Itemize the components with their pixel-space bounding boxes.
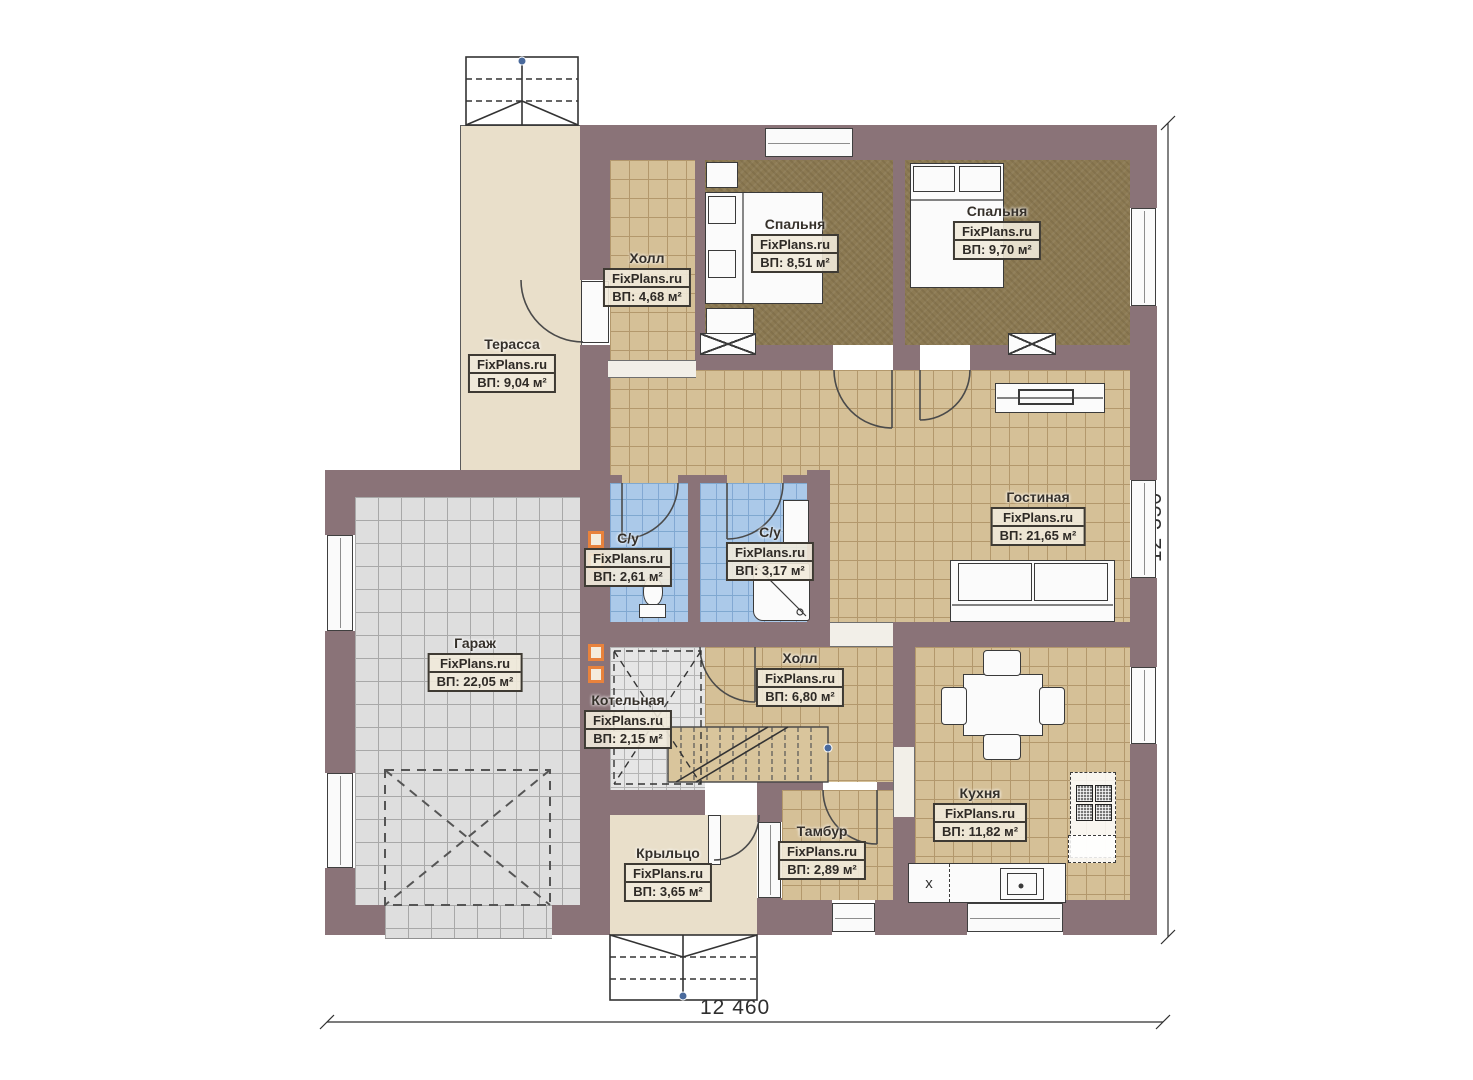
- room-area: ВП: 2,15 м²: [586, 730, 670, 747]
- entry-door: [832, 903, 875, 932]
- wall-segment: [552, 905, 585, 935]
- wall-segment: [1130, 306, 1157, 480]
- wall-segment: [1063, 900, 1130, 935]
- room-label-kitchen: Кухня FixPlans.ru ВП: 11,82 м²: [933, 785, 1027, 842]
- watermark: FixPlans.ru: [753, 236, 837, 254]
- wall-segment: [610, 622, 830, 647]
- room-area: ВП: 9,70 м²: [955, 241, 1039, 258]
- wall-segment: [893, 160, 905, 370]
- watermark: FixPlans.ru: [758, 670, 842, 688]
- room-name: Холл: [603, 250, 691, 266]
- room-label-porch: Крыльцо FixPlans.ru ВП: 3,65 м²: [624, 845, 712, 902]
- tv: [1018, 389, 1074, 405]
- room-area: ВП: 2,61 м²: [586, 568, 670, 585]
- pillow: [913, 166, 955, 192]
- chair: [1039, 687, 1065, 725]
- watermark: FixPlans.ru: [586, 712, 670, 730]
- wall-segment: [893, 622, 1130, 647]
- room-name: Спальня: [953, 203, 1041, 219]
- room-name: С/у: [726, 524, 814, 540]
- room-area: ВП: 3,65 м²: [626, 883, 710, 900]
- nightstand: [706, 162, 738, 188]
- room-area: ВП: 9,04 м²: [470, 374, 554, 391]
- burner: [1095, 804, 1112, 821]
- wall-segment: [757, 790, 782, 822]
- wall-segment: [905, 900, 967, 935]
- window: [1131, 208, 1156, 306]
- wall-segment: [325, 631, 355, 773]
- porch-steps: [610, 935, 757, 1000]
- room-area: ВП: 6,80 м²: [758, 688, 842, 705]
- watermark: FixPlans.ru: [430, 655, 521, 673]
- wall-segment: [325, 470, 580, 497]
- room-area: ВП: 11,82 м²: [935, 823, 1025, 840]
- wall-segment: [580, 125, 1157, 160]
- room-label-wc1: С/у FixPlans.ru ВП: 2,61 м²: [584, 530, 672, 587]
- window: [765, 128, 853, 157]
- wall-segment: [688, 475, 700, 622]
- floor-plan: x: [0, 0, 1473, 1080]
- vent-marker: [588, 666, 604, 683]
- room-label-hall-top: Холл FixPlans.ru ВП: 4,68 м²: [603, 250, 691, 307]
- room-label-bedroom1: Спальня FixPlans.ru ВП: 8,51 м²: [751, 216, 839, 273]
- window: [327, 773, 353, 868]
- room-label-boiler: Котельная FixPlans.ru ВП: 2,15 м²: [584, 692, 672, 749]
- room-name: Спальня: [751, 216, 839, 232]
- room-label-garage: Гараж FixPlans.ru ВП: 22,05 м²: [428, 635, 523, 692]
- room-name: Тамбур: [778, 823, 866, 839]
- wall-segment: [610, 475, 622, 483]
- chair: [983, 734, 1021, 760]
- room-area: ВП: 22,05 м²: [430, 673, 521, 690]
- watermark: FixPlans.ru: [935, 805, 1025, 823]
- watermark: FixPlans.ru: [470, 356, 554, 374]
- room-label-bedroom2: Спальня FixPlans.ru ВП: 9,70 м²: [953, 203, 1041, 260]
- room-name: Крыльцо: [624, 845, 712, 861]
- room-name: Холл: [756, 650, 844, 666]
- watermark: FixPlans.ru: [728, 544, 812, 562]
- room-name: Котельная: [584, 692, 672, 708]
- burner: [1076, 804, 1093, 821]
- wall-segment: [1130, 160, 1157, 208]
- wall-segment: [875, 900, 905, 935]
- passage-living-hall: [830, 622, 893, 647]
- room-area: ВП: 21,65 м²: [993, 527, 1084, 544]
- passage-hall-living: [608, 360, 696, 378]
- window: [327, 535, 353, 631]
- wall-segment: [877, 782, 893, 790]
- wardrobe: [700, 333, 756, 355]
- room-area: ВП: 2,89 м²: [780, 861, 864, 878]
- wall-segment: [1130, 744, 1157, 935]
- chair: [983, 650, 1021, 676]
- window: [1131, 667, 1156, 744]
- sofa-cushion: [958, 563, 1032, 601]
- wall-segment: [325, 497, 355, 535]
- wall-segment: [757, 782, 823, 790]
- watermark: FixPlans.ru: [780, 843, 864, 861]
- room-name: Гараж: [428, 635, 523, 651]
- room-name: Терасса: [468, 336, 556, 352]
- wall-segment: [678, 475, 688, 483]
- wall-segment: [757, 900, 832, 935]
- sofa-cushion: [1034, 563, 1108, 601]
- watermark: FixPlans.ru: [586, 550, 670, 568]
- room-area: ВП: 8,51 м²: [753, 254, 837, 271]
- floor-garage-apron: [385, 905, 552, 939]
- room-area: ВП: 3,17 м²: [728, 562, 812, 579]
- wall-segment: [700, 475, 727, 483]
- wall-segment: [580, 345, 610, 470]
- room-label-living: Гостиная FixPlans.ru ВП: 21,65 м²: [991, 489, 1086, 546]
- pillow: [959, 166, 1001, 192]
- wall-segment: [893, 647, 915, 747]
- wardrobe: [1008, 333, 1056, 355]
- dresser: [706, 308, 754, 334]
- sink-basin: [1007, 873, 1037, 895]
- wall-segment: [1130, 578, 1157, 667]
- chair: [941, 687, 967, 725]
- kitchen-cabinet: [1068, 835, 1116, 863]
- room-label-tambour: Тамбур FixPlans.ru ВП: 2,89 м²: [778, 823, 866, 880]
- burner: [1095, 785, 1112, 802]
- toilet-tank: [639, 604, 666, 618]
- room-name: С/у: [584, 530, 672, 546]
- vent-marker: [588, 644, 604, 661]
- room-area: ВП: 4,68 м²: [605, 288, 689, 305]
- floor-garage: [355, 497, 580, 905]
- cabinet-x: x: [909, 864, 950, 902]
- watermark: FixPlans.ru: [993, 509, 1084, 527]
- wall-segment: [325, 905, 385, 935]
- floor-terrace: [460, 125, 582, 472]
- room-label-hall-bottom: Холл FixPlans.ru ВП: 6,80 м²: [756, 650, 844, 707]
- room-name: Кухня: [933, 785, 1027, 801]
- terrace-steps: [466, 57, 578, 125]
- watermark: FixPlans.ru: [605, 270, 689, 288]
- pillow: [708, 196, 736, 224]
- window: [967, 903, 1063, 932]
- room-label-terrace: Терасса FixPlans.ru ВП: 9,04 м²: [468, 336, 556, 393]
- pillow: [708, 250, 736, 278]
- room-name: Гостиная: [991, 489, 1086, 505]
- wall-segment: [783, 475, 807, 483]
- window: [1131, 480, 1156, 578]
- dining-table: [963, 674, 1043, 736]
- watermark: FixPlans.ru: [626, 865, 710, 883]
- passage-hall-kitchen: [893, 747, 915, 817]
- watermark: FixPlans.ru: [955, 223, 1039, 241]
- burner: [1076, 785, 1093, 802]
- wall-segment: [580, 790, 705, 815]
- dimension-bottom: 12 460: [700, 996, 770, 1020]
- room-label-wc2: С/у FixPlans.ru ВП: 3,17 м²: [726, 524, 814, 581]
